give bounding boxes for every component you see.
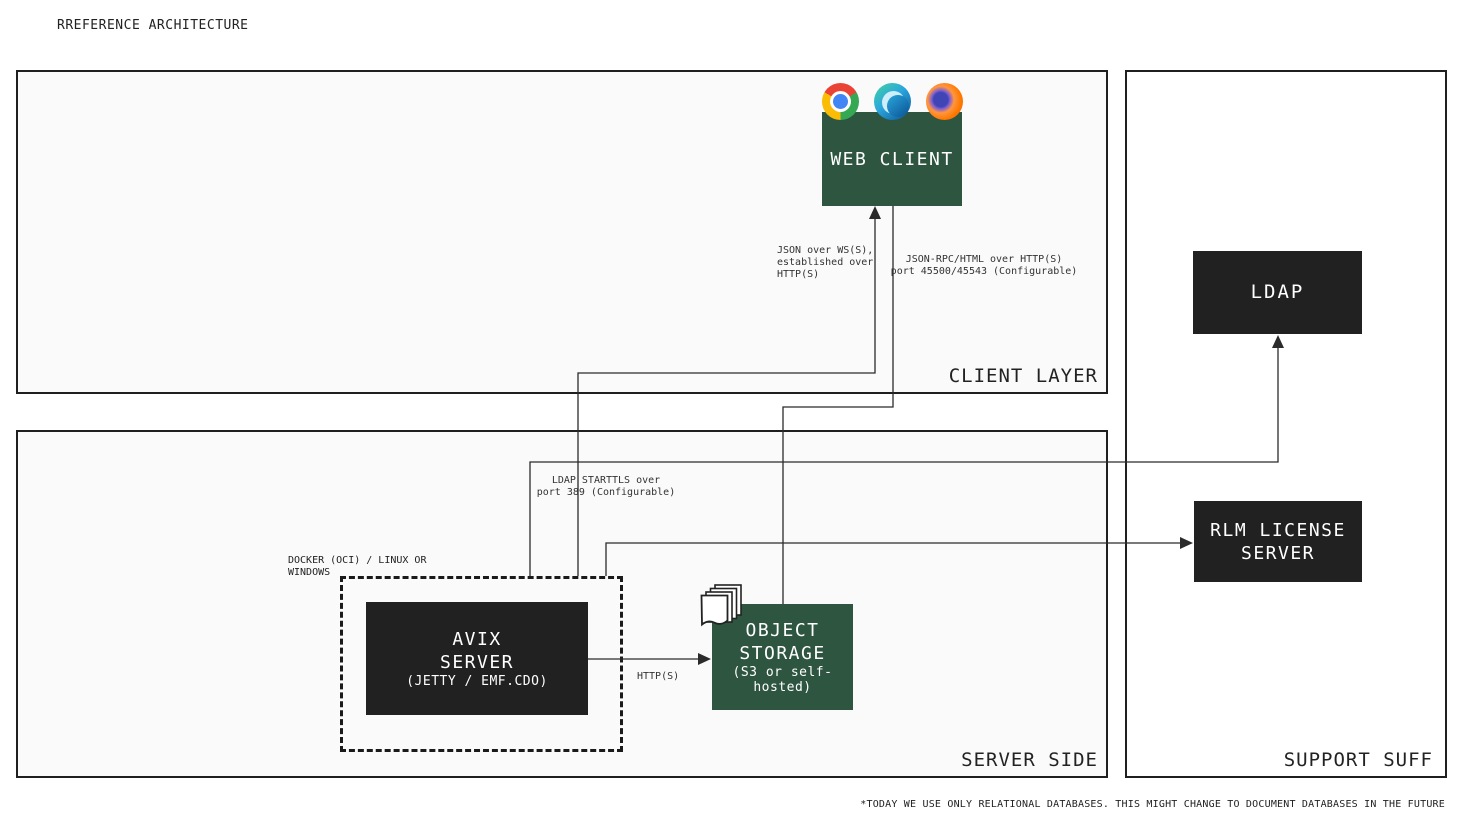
web-client-title: WEB CLIENT: [830, 148, 953, 171]
rlm-license-server-node: RLM LICENSE SERVER: [1194, 501, 1362, 582]
support-stuff-box: SUPPORT SUFF: [1125, 70, 1447, 778]
page-title: RREFERENCE ARCHITECTURE: [57, 18, 249, 33]
rpc-connection-label: JSON-RPC/HTML over HTTP(S) port 45500/45…: [886, 254, 1082, 278]
http-connection-label: HTTP(S): [637, 671, 679, 683]
avix-server-title-line1: AVIX: [452, 628, 501, 651]
object-storage-title-line2: STORAGE: [739, 642, 825, 665]
ldap-connection-label: LDAP STARTTLS over port 389 (Configurabl…: [536, 475, 676, 499]
rlm-title-line2: SERVER: [1241, 542, 1315, 565]
rlm-title-line1: RLM LICENSE: [1210, 519, 1346, 542]
client-layer-label: CLIENT LAYER: [949, 365, 1098, 387]
edge-icon: [874, 83, 911, 120]
footnote: *TODAY WE USE ONLY RELATIONAL DATABASES.…: [860, 799, 1445, 810]
support-stuff-label: SUPPORT SUFF: [1284, 749, 1433, 771]
avix-server-title-line2: SERVER: [440, 651, 514, 674]
documents-stack-icon: [698, 583, 748, 629]
object-storage-title-line1: OBJECT: [745, 619, 819, 642]
avix-server-subtitle: (JETTY / EMF.CDO): [406, 674, 548, 689]
ldap-node: LDAP: [1193, 251, 1362, 334]
web-client-node: WEB CLIENT: [822, 112, 962, 206]
ws-connection-label: JSON over WS(S), established over HTTP(S…: [777, 245, 873, 281]
firefox-icon: [926, 83, 963, 120]
chrome-icon: [822, 83, 859, 120]
docker-host-label: DOCKER (OCI) / LINUX OR WINDOWS: [288, 555, 426, 579]
object-storage-subtitle-line1: (S3 or self-: [733, 665, 833, 680]
server-side-label: SERVER SIDE: [961, 749, 1098, 771]
ldap-title: LDAP: [1251, 281, 1305, 304]
avix-server-node: AVIX SERVER (JETTY / EMF.CDO): [366, 602, 588, 715]
object-storage-subtitle-line2: hosted): [753, 680, 811, 695]
